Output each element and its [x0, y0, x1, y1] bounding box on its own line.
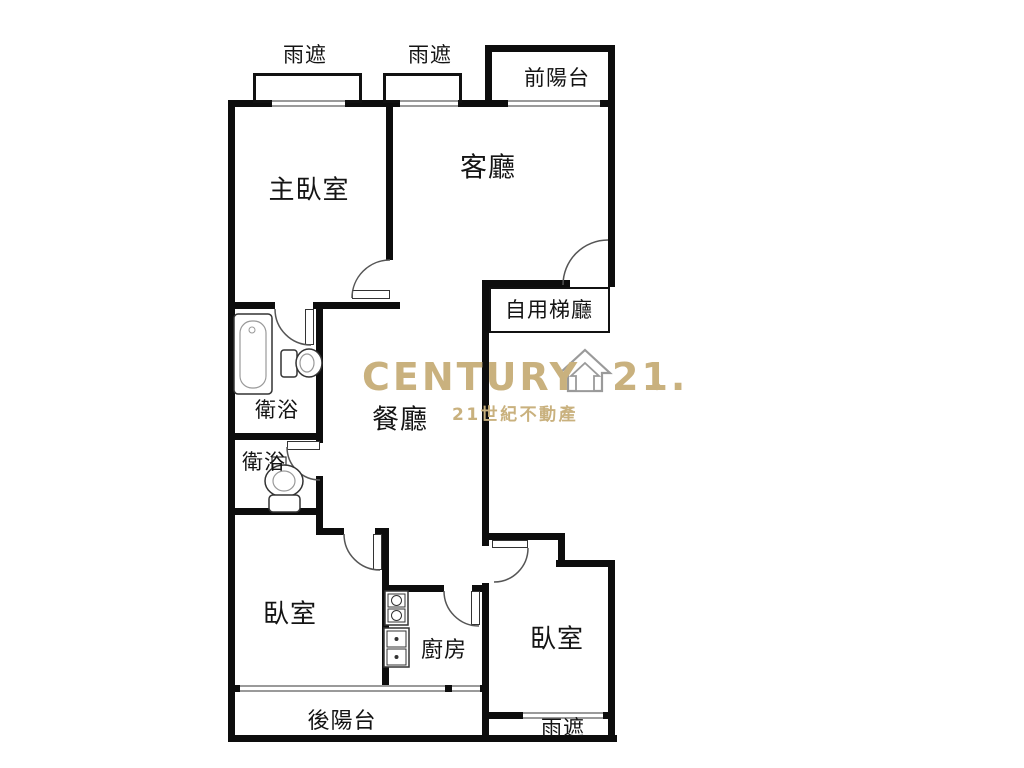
stove-icon — [385, 591, 408, 625]
label-kitchen: 廚房 — [421, 632, 467, 664]
door-arc-entry — [563, 240, 608, 285]
label-rear-balcony: 後陽台 — [307, 703, 376, 735]
watermark-subtitle: 21世紀不動產 — [452, 400, 578, 425]
label-dining-room: 餐廳 — [372, 398, 428, 437]
label-rain-cover-mid: 雨遮 — [408, 39, 452, 69]
label-rain-cover-bottom: 雨遮 — [541, 712, 585, 742]
door-arc-bath-upper — [275, 309, 311, 345]
door-arc-master — [352, 260, 390, 298]
toilet-icon-upper — [281, 349, 322, 377]
label-bathroom-lower: 衛浴 — [242, 446, 286, 476]
label-master-bedroom: 主臥室 — [268, 170, 349, 207]
label-bathroom-upper: 衛浴 — [255, 394, 299, 424]
label-bedroom-right: 臥室 — [530, 619, 584, 656]
floor-plan: CENTURY 21. ® 21世紀不動產 雨遮 雨遮 前陽台 主臥室 客廳 自… — [0, 0, 1024, 768]
sink-icon — [384, 628, 409, 667]
label-front-balcony: 前陽台 — [524, 62, 590, 92]
label-elevator-hall: 自用梯廳 — [505, 294, 593, 324]
label-bedroom-left: 臥室 — [263, 594, 317, 631]
registered-mark-icon: ® — [652, 382, 662, 393]
door-arc-bedroom-right — [494, 548, 528, 582]
watermark-brand: CENTURY — [362, 355, 580, 399]
label-living-room: 客廳 — [460, 146, 516, 185]
label-rain-cover-left: 雨遮 — [283, 39, 327, 69]
door-arc-bedroom-left — [344, 534, 380, 570]
watermark-number: 21. — [612, 355, 688, 399]
bathtub-icon — [234, 314, 272, 394]
door-arc-kitchen — [444, 591, 479, 626]
